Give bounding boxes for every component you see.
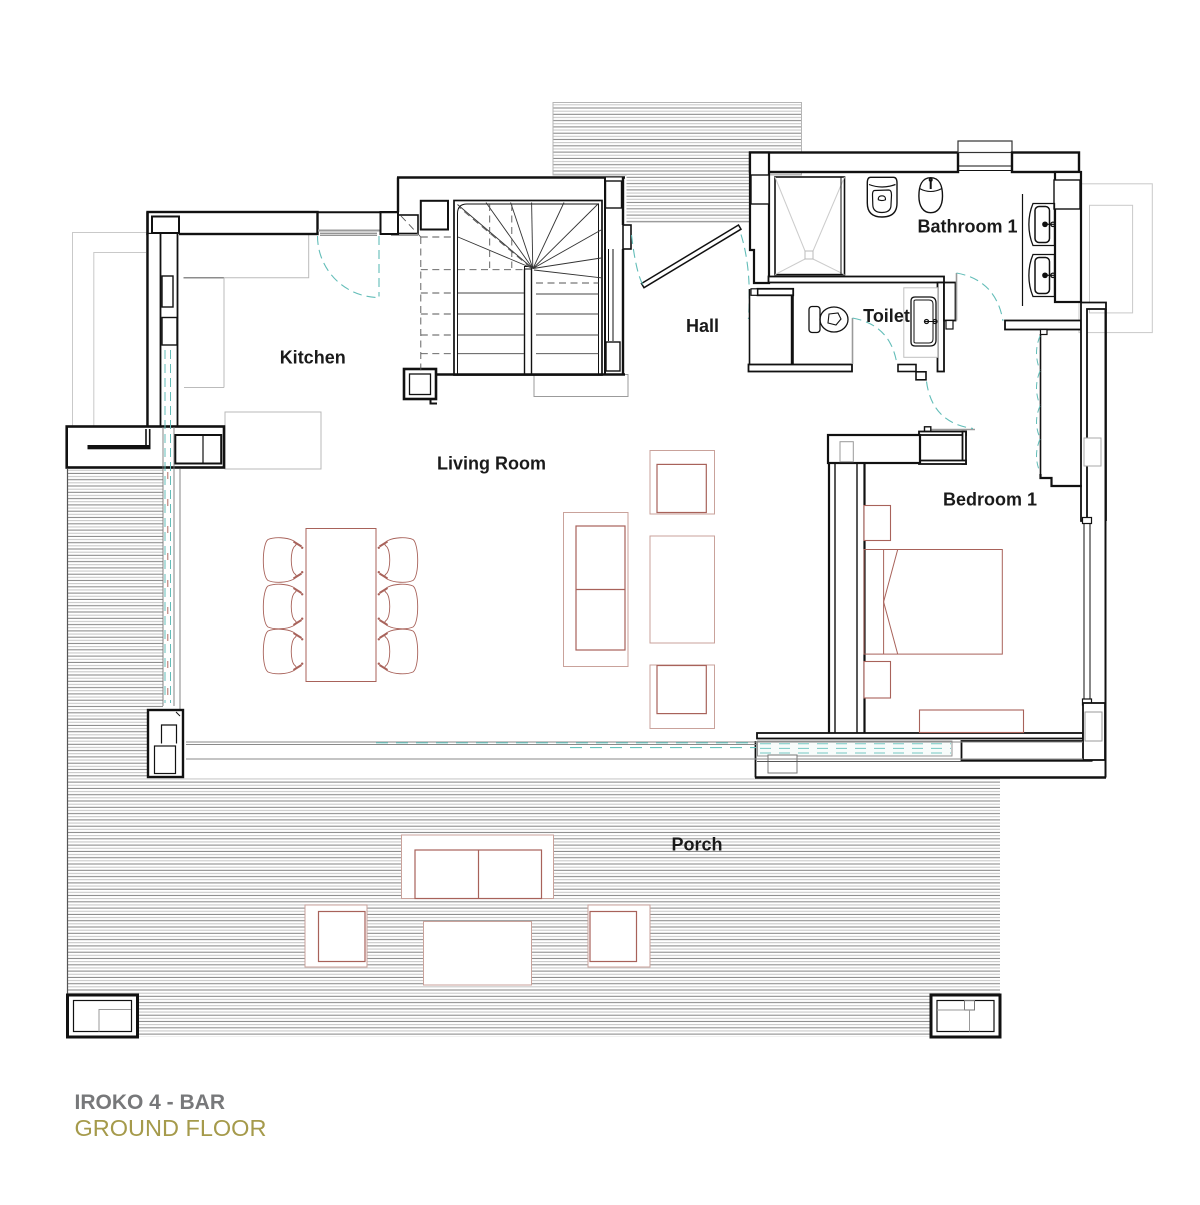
svg-text:GROUND FLOOR: GROUND FLOOR: [75, 1115, 267, 1141]
svg-text:IROKO 4 - BAR: IROKO 4 - BAR: [75, 1091, 226, 1114]
svg-text:Bathroom 1: Bathroom 1: [917, 217, 1017, 237]
svg-text:Bedroom 1: Bedroom 1: [943, 490, 1037, 510]
svg-text:Living Room: Living Room: [437, 454, 546, 474]
svg-text:Hall: Hall: [686, 316, 719, 336]
svg-text:Porch: Porch: [671, 835, 722, 855]
svg-text:Kitchen: Kitchen: [280, 347, 346, 367]
svg-text:Toilet: Toilet: [863, 306, 910, 326]
